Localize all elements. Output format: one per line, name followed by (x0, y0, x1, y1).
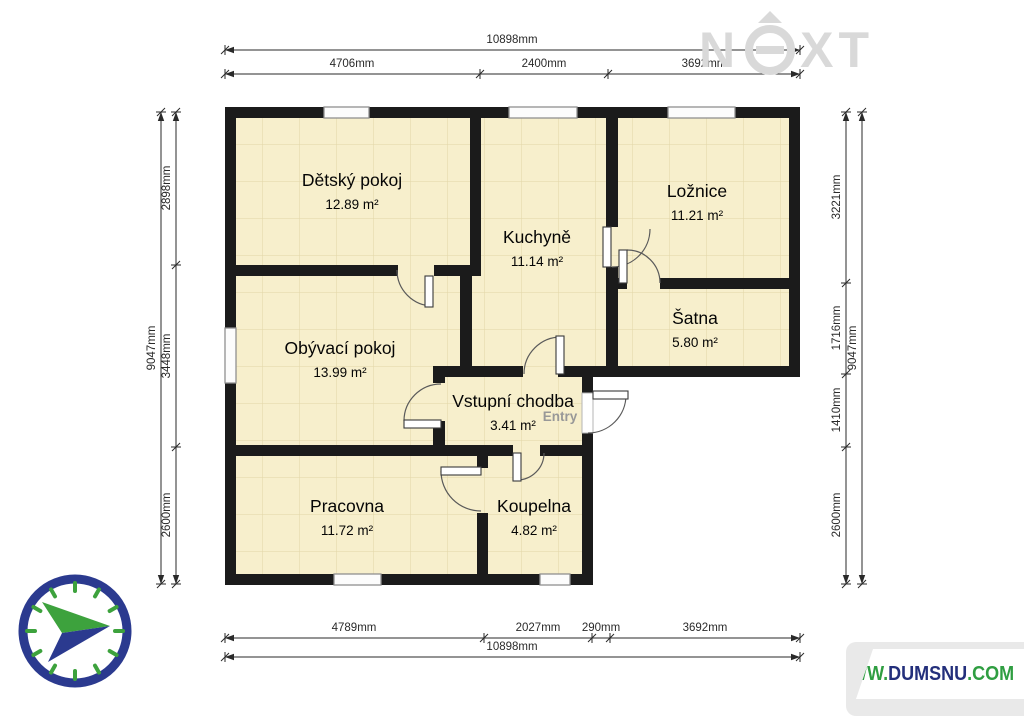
dimension-arrow (173, 112, 179, 121)
watermark-letter: T (838, 24, 874, 76)
window (540, 574, 570, 585)
wall (540, 445, 593, 456)
dimension-label: 3448mm (161, 334, 173, 379)
wall (477, 513, 488, 574)
door-leaf (556, 336, 564, 374)
entry-door-opening (582, 393, 593, 433)
dimension-arrow (859, 112, 865, 121)
next-logo-watermark: N X T (699, 24, 874, 76)
room-name: Obývací pokoj (285, 338, 396, 358)
dimension-label: 4706mm (330, 58, 375, 70)
room-name: Dětský pokoj (302, 170, 402, 190)
website-tld: .COM (967, 663, 1014, 685)
website-banner: WWW.DUMSNU.COM (856, 649, 1024, 699)
dimension-label: 9047mm (847, 326, 859, 371)
door-leaf (441, 467, 481, 475)
room-area: 3.41 m² (490, 418, 536, 433)
dimension-label: 4789mm (332, 622, 377, 634)
floorplan-page: Dětský pokoj12.89 m²Kuchyně11.14 m²Ložni… (0, 0, 1024, 724)
dimension-arrow (843, 575, 849, 584)
dimension-arrow (225, 654, 234, 660)
dimension-arrow (225, 635, 234, 641)
dimension-arrow (791, 654, 800, 660)
wall (225, 574, 593, 585)
dimension-label: 9047mm (146, 326, 158, 371)
floor-plan-drawing: Dětský pokoj12.89 m²Kuchyně11.14 m²Ložni… (0, 0, 1024, 724)
door-leaf (425, 276, 433, 307)
room-name: Vstupní chodba (452, 391, 574, 411)
dimension-arrow (225, 71, 234, 77)
dimension-label: 2600mm (161, 493, 173, 538)
room-area: 5.80 m² (672, 335, 718, 350)
dimension-arrow (158, 575, 164, 584)
room-name: Pracovna (310, 496, 384, 516)
dimension-label: 1716mm (831, 306, 843, 351)
watermark-letter: N (699, 24, 740, 76)
website-domain: DUMSNU (888, 663, 967, 685)
room-area: 4.82 m² (511, 523, 557, 538)
dimension-arrow (225, 47, 234, 53)
dimension-label: 3221mm (831, 175, 843, 220)
room-name: Kuchyně (503, 227, 571, 247)
dimension-label: 3692mm (683, 622, 728, 634)
room-area: 11.72 m² (321, 523, 374, 538)
wall (558, 366, 618, 377)
dimension-label: 290mm (582, 622, 620, 634)
door-leaf (603, 227, 611, 267)
wall (470, 107, 481, 276)
door-leaf (513, 453, 521, 481)
room-area: 11.21 m² (671, 208, 724, 223)
wall (606, 107, 618, 227)
dimension-label: 2898mm (161, 166, 173, 211)
room-area: 12.89 m² (325, 197, 379, 212)
wall (660, 278, 789, 289)
wall (789, 107, 800, 377)
room-area: 13.99 m² (313, 365, 367, 380)
window (225, 328, 236, 383)
window (668, 107, 735, 118)
wall (477, 456, 488, 468)
window (334, 574, 381, 585)
wall (433, 377, 445, 383)
room-area: 11.14 m² (511, 254, 564, 269)
dimension-label: 1410mm (831, 388, 843, 433)
wall (225, 445, 513, 456)
wall (433, 366, 523, 377)
door-swing-arc (588, 395, 626, 433)
next-logo-e-icon (745, 25, 795, 75)
dimension-arrow (173, 575, 179, 584)
room-name: Šatna (672, 307, 718, 328)
entry-label: Entry (543, 409, 578, 424)
room-name: Ložnice (667, 181, 727, 201)
dimension-label: 2400mm (522, 58, 567, 70)
dimension-label: 2600mm (831, 493, 843, 538)
dimension-arrow (791, 635, 800, 641)
room-name: Koupelna (497, 496, 571, 516)
window (509, 107, 577, 118)
window (324, 107, 369, 118)
door-leaf (619, 250, 627, 283)
door-leaf (593, 391, 628, 399)
door-leaf (404, 420, 441, 428)
dimension-label: 10898mm (486, 34, 537, 46)
wall (236, 265, 398, 276)
dimension-label: 2027mm (516, 622, 561, 634)
next-logo-caret-icon (758, 11, 782, 23)
dimension-arrow (843, 112, 849, 121)
watermark-letter: X (800, 24, 838, 76)
next-logo-e-bar (756, 46, 784, 54)
dimension-label: 10898mm (486, 641, 537, 653)
dimension-arrow (859, 575, 865, 584)
wall (460, 265, 472, 377)
dimension-arrow (158, 112, 164, 121)
